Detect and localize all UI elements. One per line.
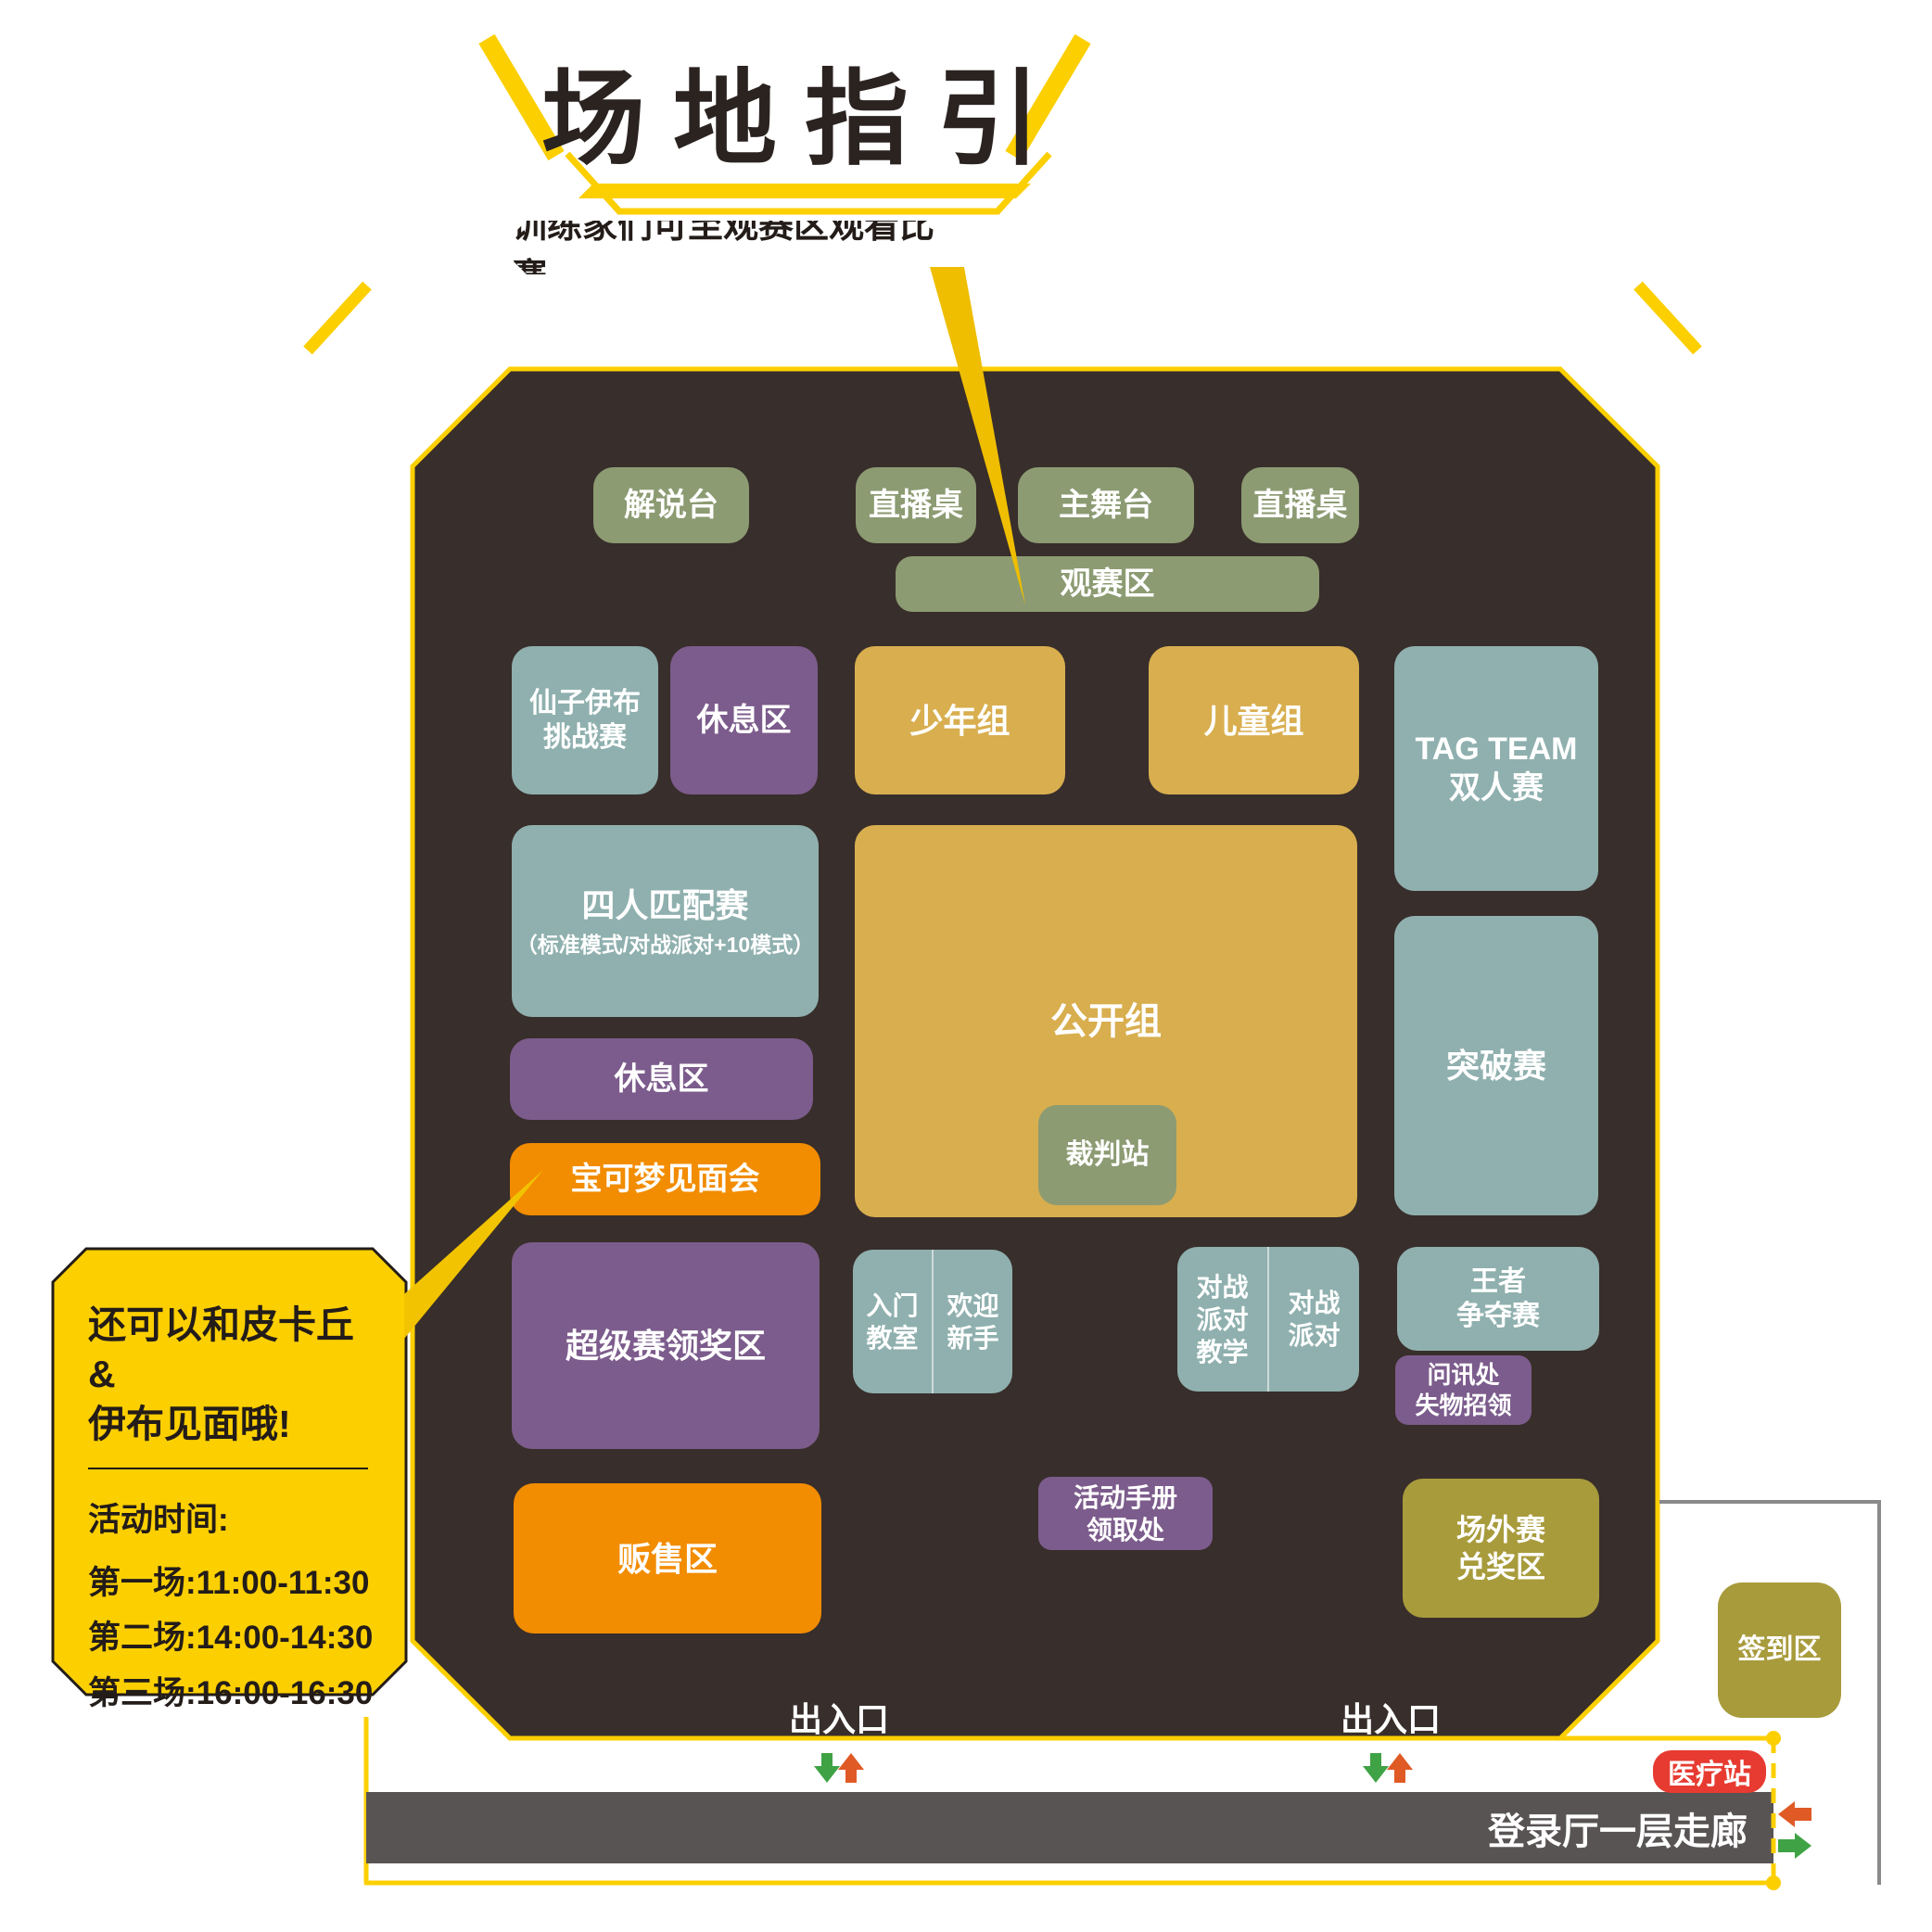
zone-label: 观赛区 [1061, 565, 1155, 604]
zone-premier-prize: 超级赛领奖区 [512, 1242, 820, 1449]
zone-label: 直播桌 [869, 486, 963, 526]
zone-label: 活动手册 领取处 [1074, 1481, 1177, 1546]
zone-handbook-pickup: 活动手册 领取处 [1038, 1477, 1213, 1550]
arrow-right-icon [1778, 1833, 1811, 1859]
zone-label: 直播桌 [1253, 486, 1348, 526]
zone-pokemon-meetup: 宝可梦见面会 [510, 1143, 820, 1215]
venue-guide-poster: 场地指引 训练家们可至观赛区观看比赛 解说台 直播桌 主舞台 直播桌 观赛区 仙… [0, 0, 1932, 1932]
zone-tag-team-doubles: TAG TEAM 双人赛 [1394, 646, 1598, 891]
zone-battle-party-teaching: 对战 派对 教学 [1177, 1247, 1267, 1392]
zone-outside-prize: 场外赛 兑奖区 [1403, 1479, 1599, 1618]
zone-beginner-class: 入门 教室 [853, 1250, 932, 1393]
zone-battle-party: 对战 派对 教学 对战 派对 [1177, 1247, 1359, 1392]
zone-label: 休息区 [697, 701, 792, 741]
zone-label: 问讯处 失物招领 [1415, 1360, 1511, 1420]
title-banner-bar [578, 184, 1031, 198]
zone-label: 少年组 [909, 700, 1010, 742]
zone-commentary-desk: 解说台 [593, 467, 749, 543]
pikachu-meetup-callout: 还可以和皮卡丘& 伊布见面哦! 活动时间: 第一场:11:00-11:30 第二… [51, 1247, 408, 1697]
schedule-session-3: 第三场:16:00-16:30 [88, 1666, 376, 1722]
arrow-down-icon [1363, 1753, 1389, 1783]
callout-divider [88, 1468, 368, 1469]
page-title: 场地指引 [0, 35, 1609, 185]
zone-label: 场外赛 兑奖区 [1456, 1511, 1545, 1585]
callout-line1: 还可以和皮卡丘& [88, 1301, 376, 1400]
zone-stream-desk-a: 直播桌 [856, 467, 976, 543]
zone-checkin-area: 签到区 [1718, 1582, 1841, 1718]
zone-label: 休息区 [615, 1060, 709, 1099]
schedule-session-1: 第一场:11:00-11:30 [88, 1556, 376, 1611]
map-corner-accent-left [308, 286, 367, 350]
zone-battle-party-play: 对战 派对 [1267, 1247, 1359, 1392]
zone-label: 仙子伊布 挑战赛 [529, 686, 641, 756]
arrow-left-icon [1778, 1801, 1811, 1827]
zone-sublabel: （标准模式/对战派对+10模式） [516, 932, 814, 959]
zone-junior-group: 少年组 [855, 646, 1065, 794]
zone-label: 王者 争夺赛 [1456, 1265, 1540, 1334]
zone-label: 儿童组 [1203, 700, 1303, 742]
zone-breakthrough: 突破赛 [1394, 916, 1598, 1215]
zone-label: 主舞台 [1059, 486, 1153, 526]
medical-station-badge: 医疗站 [1653, 1750, 1766, 1793]
viewing-area-callout-text: 训练家们可至观赛区观看比赛 [512, 197, 964, 299]
arrow-down-icon [814, 1753, 840, 1783]
zone-rest-area-b: 休息区 [510, 1038, 813, 1120]
zone-stream-desk-b: 直播桌 [1241, 467, 1359, 543]
entrance-label-1: 出入口 [746, 1693, 932, 1741]
zone-label: 解说台 [624, 486, 718, 526]
entrance-label-2: 出入口 [1298, 1693, 1483, 1741]
zone-viewing-area: 观赛区 [896, 556, 1319, 612]
callout-line2: 伊布见面哦! [88, 1400, 376, 1449]
zone-label: 超级赛领奖区 [566, 1325, 766, 1366]
schedule-session-2: 第二场:14:00-14:30 [88, 1610, 376, 1666]
medical-label: 医疗站 [1668, 1751, 1751, 1792]
zone-info-lost-found: 问讯处 失物招领 [1395, 1355, 1532, 1425]
zone-referee-station: 裁判站 [1038, 1105, 1176, 1205]
zone-welcome-newbie: 欢迎 新手 [932, 1250, 1012, 1393]
schedule-heading: 活动时间: [88, 1493, 376, 1541]
corridor-bar: 登录厅一层走廊 [366, 1792, 1773, 1863]
zone-king-battle: 王者 争夺赛 [1397, 1247, 1599, 1351]
zone-rest-area-a: 休息区 [670, 646, 818, 794]
zone-label: 贩售区 [617, 1538, 718, 1580]
zone-label: 公开组 [1050, 998, 1162, 1045]
arrow-up-icon [1387, 1753, 1413, 1783]
zone-four-player-match: 四人匹配赛 （标准模式/对战派对+10模式） [512, 825, 819, 1017]
arrow-up-icon [838, 1753, 864, 1783]
zone-label: 四人匹配赛 [581, 884, 748, 926]
viewing-callout-pointer [930, 267, 1025, 605]
zone-label: 突破赛 [1446, 1045, 1546, 1087]
zone-label: 裁判站 [1066, 1138, 1150, 1173]
zone-child-group: 儿童组 [1149, 646, 1359, 794]
map-corner-accent-right [1638, 286, 1697, 350]
boundary-dot-top [1766, 1731, 1781, 1746]
corridor-label: 登录厅一层走廊 [1488, 1801, 1748, 1855]
zone-main-stage: 主舞台 [1018, 467, 1194, 543]
zone-label: 签到区 [1738, 1633, 1822, 1668]
zone-fairy-eevee-challenge: 仙子伊布 挑战赛 [512, 646, 658, 794]
viewing-area-callout: 训练家们可至观赛区观看比赛 [512, 221, 964, 274]
boundary-dot-bottom [1766, 1875, 1781, 1890]
zone-beginner-welcome: 入门 教室 欢迎 新手 [853, 1250, 1012, 1393]
zone-label: 宝可梦见面会 [571, 1160, 760, 1200]
zone-sales-area: 贩售区 [514, 1483, 821, 1633]
zone-label: TAG TEAM 双人赛 [1415, 730, 1577, 808]
